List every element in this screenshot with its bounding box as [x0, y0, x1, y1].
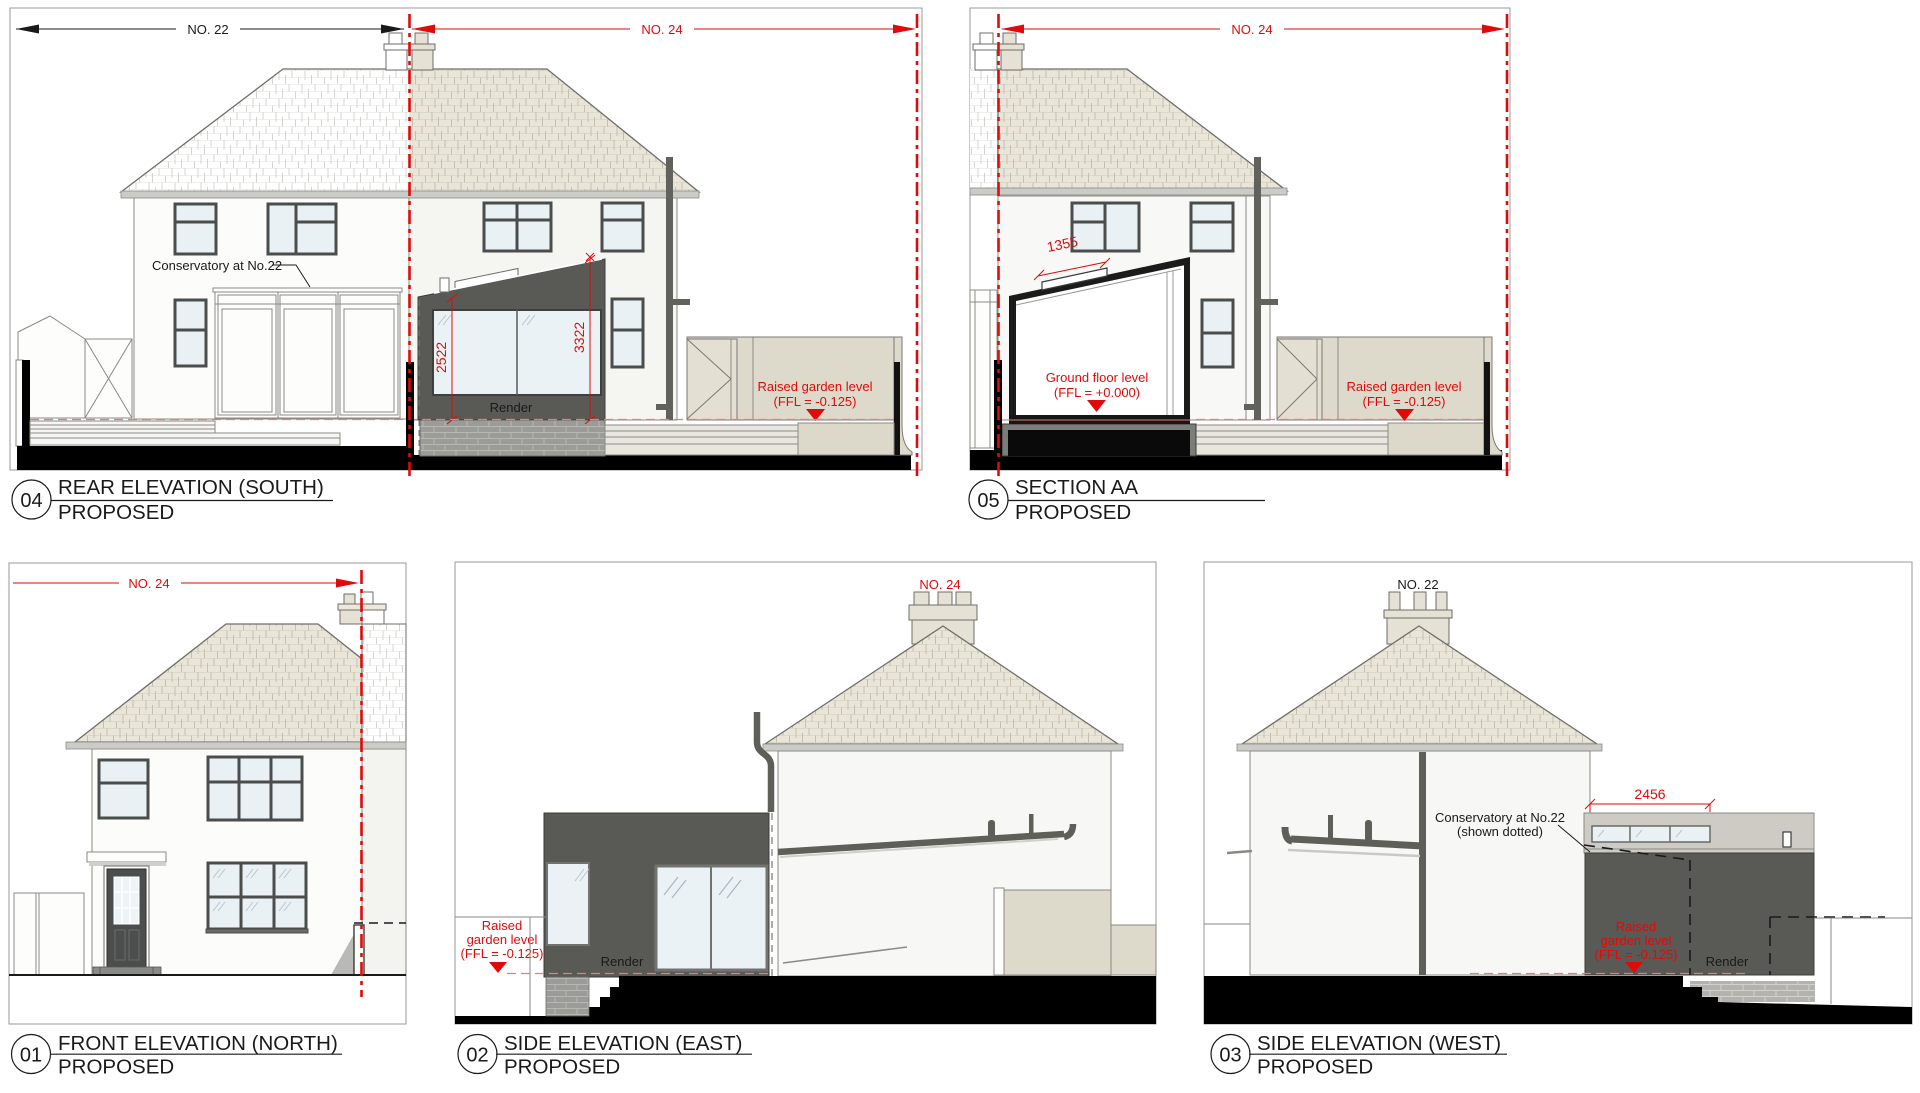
svg-text:05: 05: [977, 490, 999, 512]
svg-text:(FFL = -0.125): (FFL = -0.125): [774, 394, 857, 409]
svg-text:PROPOSED: PROPOSED: [58, 1056, 174, 1079]
svg-text:(FFL = -0.125): (FFL = -0.125): [1595, 947, 1678, 962]
svg-text:SIDE ELEVATION (EAST): SIDE ELEVATION (EAST): [504, 1032, 742, 1055]
svg-text:PROPOSED: PROPOSED: [1257, 1056, 1373, 1079]
svg-text:PROPOSED: PROPOSED: [58, 501, 174, 524]
svg-text:NO. 24: NO. 24: [1231, 22, 1272, 37]
svg-text:NO. 24: NO. 24: [641, 22, 682, 37]
svg-text:Conservatory at No.22: Conservatory at No.22: [1435, 810, 1565, 825]
svg-text:Ground floor level: Ground floor level: [1046, 370, 1149, 385]
svg-text:02: 02: [466, 1045, 488, 1067]
svg-text:01: 01: [20, 1045, 42, 1067]
svg-text:Raised: Raised: [482, 918, 522, 933]
svg-text:Raised garden level: Raised garden level: [1347, 379, 1462, 394]
svg-text:garden level: garden level: [1601, 933, 1672, 948]
svg-text:PROPOSED: PROPOSED: [1015, 501, 1131, 524]
svg-text:PROPOSED: PROPOSED: [504, 1056, 620, 1079]
svg-text:NO. 24: NO. 24: [919, 577, 960, 592]
svg-text:(shown dotted): (shown dotted): [1457, 824, 1543, 839]
svg-text:Render: Render: [601, 954, 644, 969]
svg-text:Render: Render: [1706, 954, 1749, 969]
svg-text:3322: 3322: [571, 322, 587, 353]
svg-text:Conservatory at No.22: Conservatory at No.22: [152, 258, 282, 273]
svg-text:03: 03: [1219, 1045, 1241, 1067]
svg-text:(FFL = +0.000): (FFL = +0.000): [1054, 385, 1140, 400]
svg-text:NO. 22: NO. 22: [187, 22, 228, 37]
svg-text:garden level: garden level: [467, 932, 538, 947]
svg-text:Render: Render: [490, 400, 533, 415]
svg-text:SIDE ELEVATION (WEST): SIDE ELEVATION (WEST): [1257, 1032, 1501, 1055]
svg-text:2456: 2456: [1634, 786, 1665, 802]
svg-text:NO. 24: NO. 24: [128, 576, 169, 591]
svg-text:(FFL = -0.125): (FFL = -0.125): [1363, 394, 1446, 409]
svg-text:NO. 22: NO. 22: [1397, 577, 1438, 592]
svg-text:FRONT ELEVATION (NORTH): FRONT ELEVATION (NORTH): [58, 1032, 338, 1055]
svg-text:04: 04: [20, 490, 42, 512]
svg-text:SECTION AA: SECTION AA: [1015, 476, 1138, 499]
svg-text:2522: 2522: [433, 342, 449, 373]
svg-text:Raised garden level: Raised garden level: [758, 379, 873, 394]
svg-text:REAR ELEVATION (SOUTH): REAR ELEVATION (SOUTH): [58, 476, 324, 499]
svg-text:Raised: Raised: [1616, 919, 1656, 934]
svg-text:(FFL = -0.125): (FFL = -0.125): [461, 946, 544, 961]
